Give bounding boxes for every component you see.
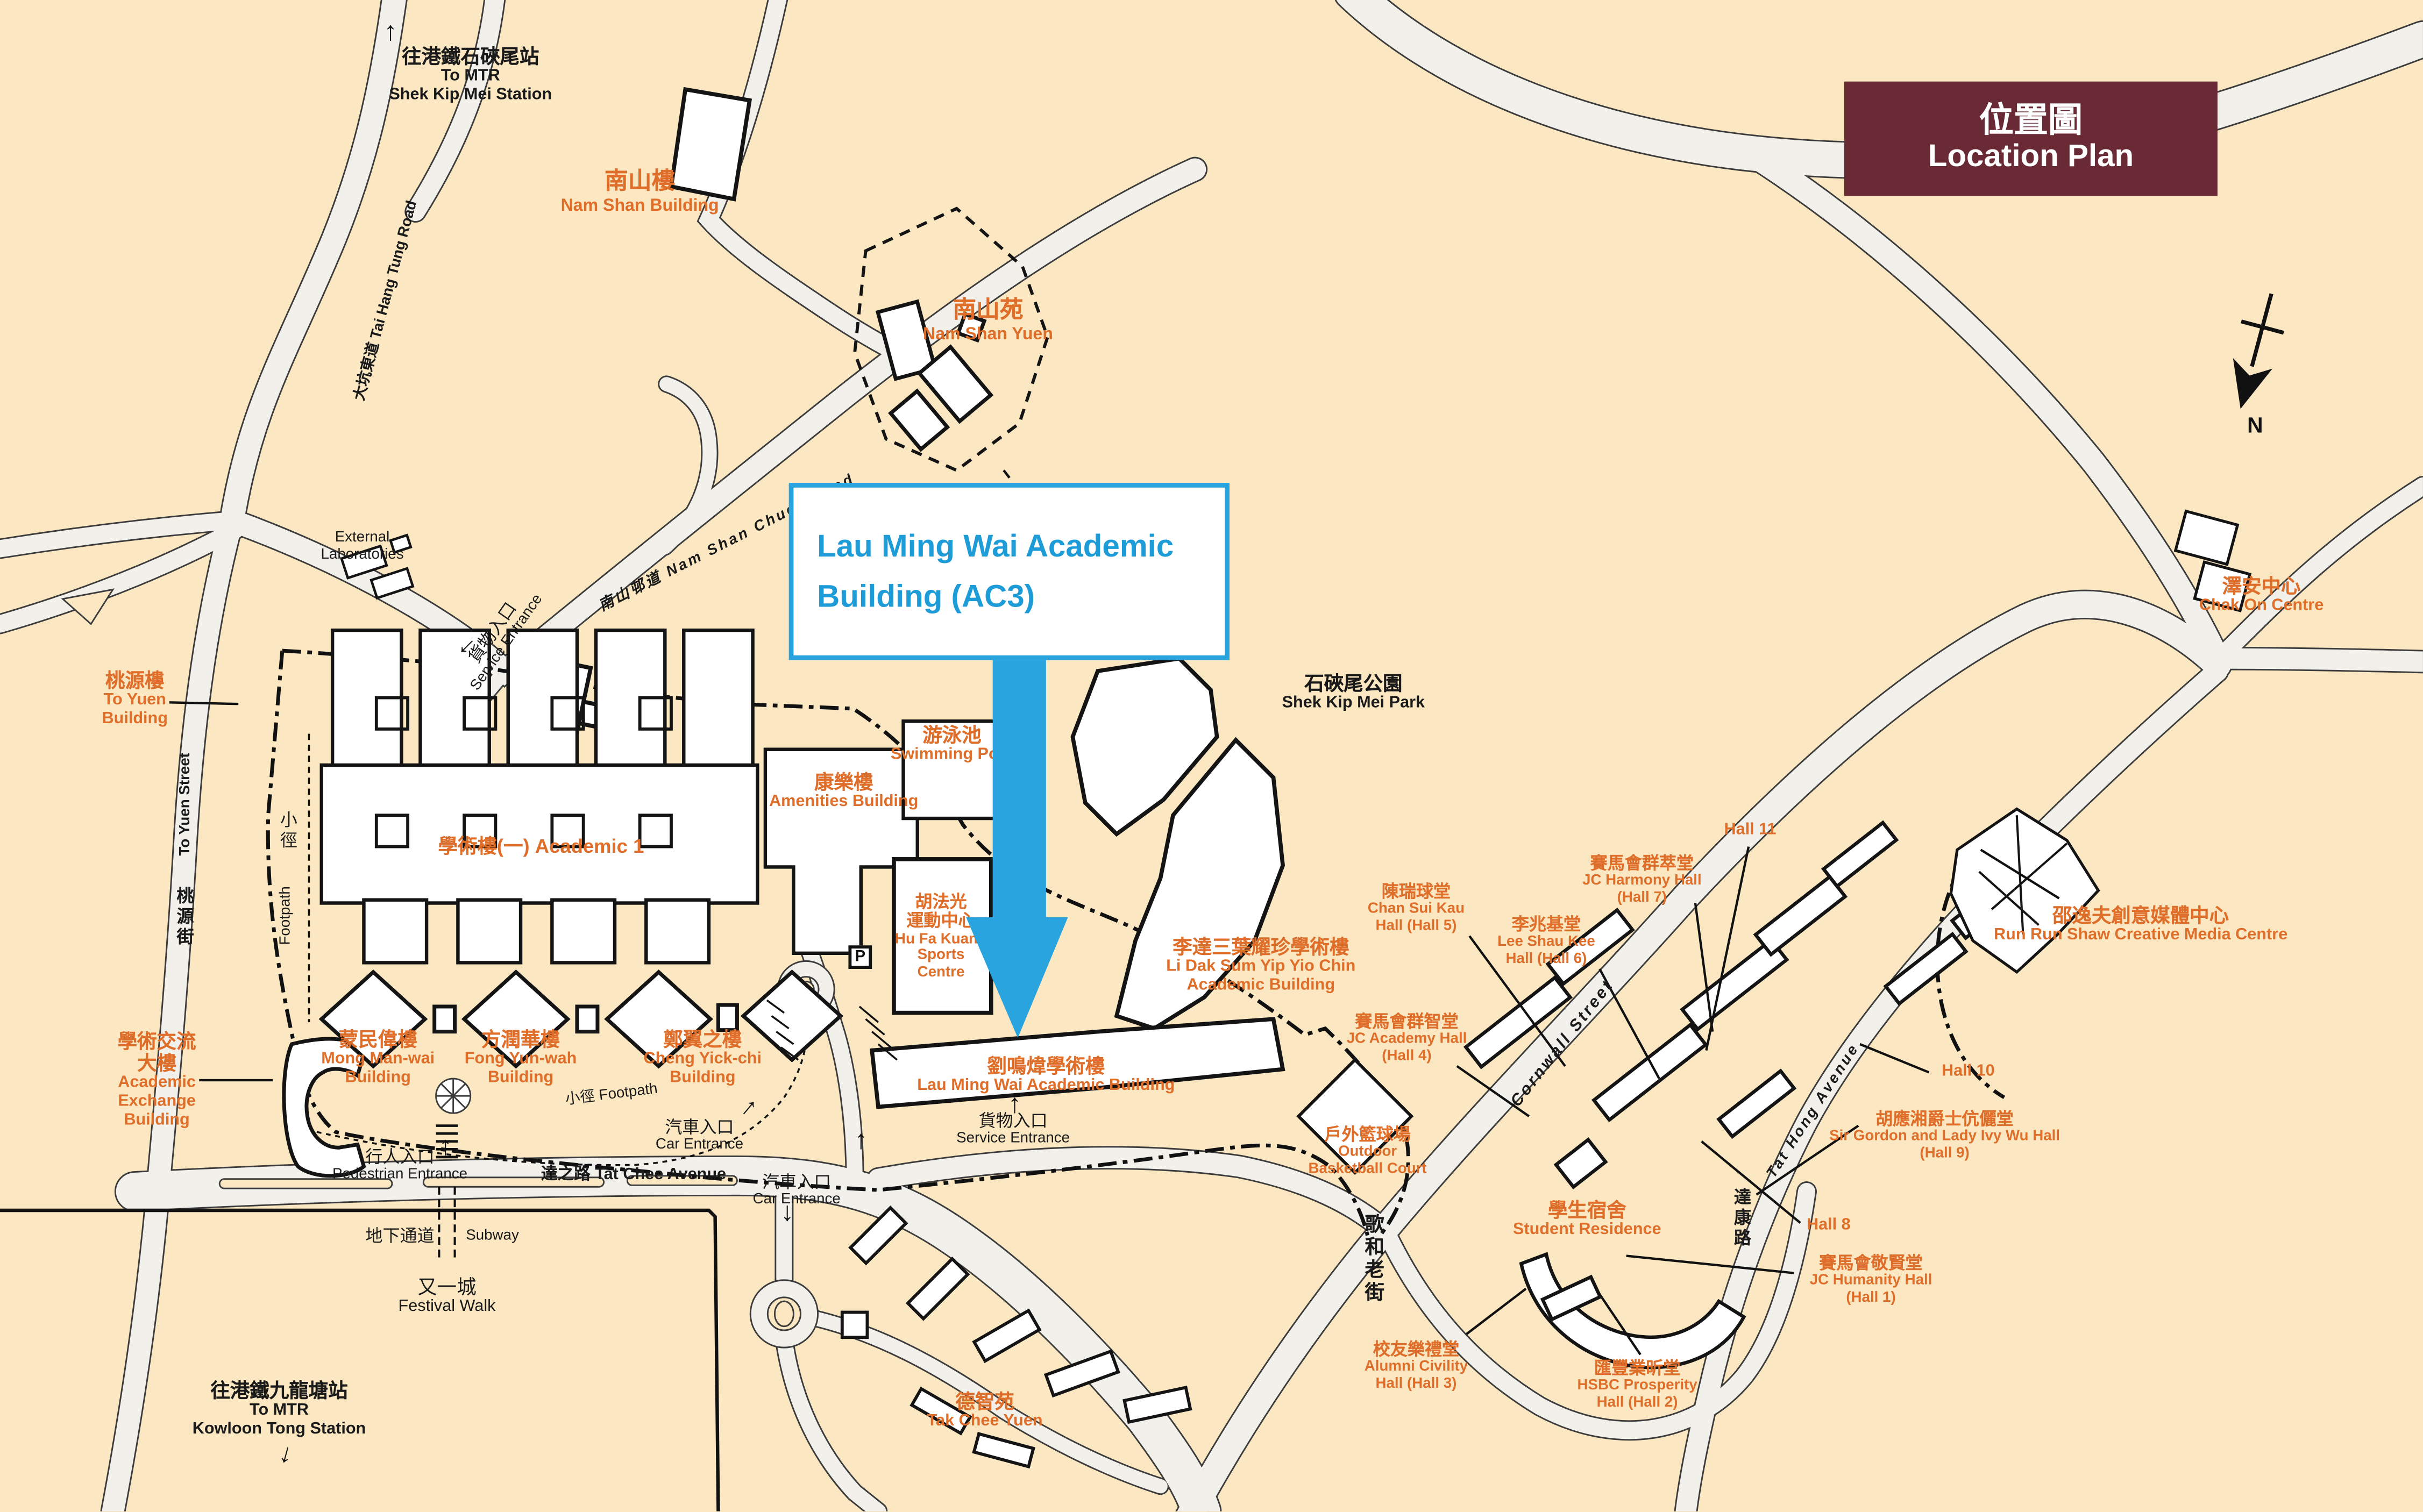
compass-n: N — [2247, 413, 2263, 436]
title-en: Location Plan — [1928, 140, 2134, 176]
highlight-arrow-layer — [0, 0, 2423, 1511]
parking-icon: P — [848, 945, 872, 969]
callout-line1: Lau Ming Wai Academic — [817, 522, 1225, 572]
highlight-arrow — [966, 660, 1068, 1038]
north-compass: N — [2208, 279, 2302, 436]
callout-lau-ming-wai[interactable]: Lau Ming Wai Academic Building (AC3) — [789, 483, 1230, 660]
callout-line2: Building (AC3) — [817, 572, 1225, 622]
title-zh: 位置圖 — [1979, 102, 2083, 140]
location-plan-map: 往港鐵石硤尾站To MTRShek Kip Mei Station南山樓Nam … — [0, 0, 2423, 1511]
title-box: 位置圖 Location Plan — [1844, 82, 2218, 196]
